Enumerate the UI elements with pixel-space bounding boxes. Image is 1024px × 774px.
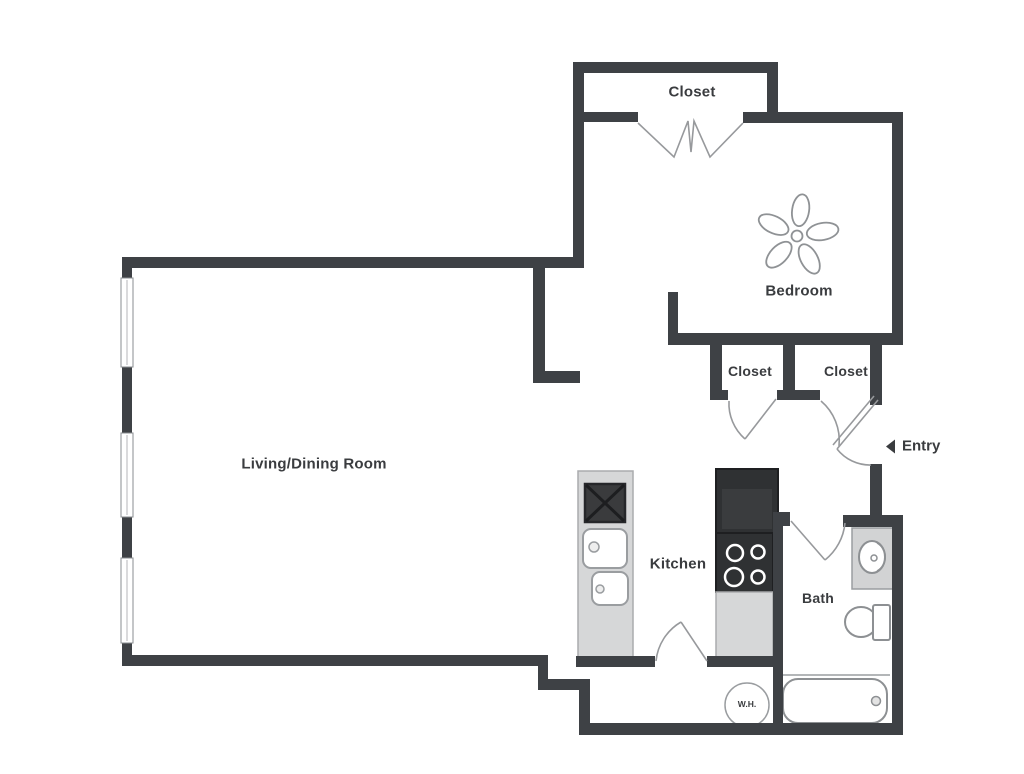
floor-plan: Closet Bedroom Living/Dining Room Closet…	[0, 0, 1024, 774]
closet-right-door-icon	[821, 401, 839, 446]
room-label-kitchen: Kitchen	[650, 556, 706, 573]
entry-arrow-icon	[886, 439, 895, 453]
entry-door-icon	[833, 396, 878, 465]
window-icon	[121, 558, 133, 643]
ceiling-fan-icon	[749, 188, 845, 280]
vanity-sink-icon	[852, 528, 893, 589]
toilet-icon	[845, 605, 890, 640]
room-label-bath: Bath	[802, 590, 834, 606]
room-label-closet-left: Closet	[728, 363, 772, 379]
kitchen-door-icon	[656, 622, 707, 661]
bifold-doors-icon	[638, 121, 743, 157]
bath-door-icon	[791, 521, 845, 560]
bathtub-icon	[781, 675, 890, 723]
walls-layer	[122, 62, 903, 735]
window-icon	[121, 278, 133, 367]
room-label-bedroom: Bedroom	[765, 283, 832, 300]
entry-label: Entry	[902, 438, 940, 455]
windows-layer	[121, 278, 133, 643]
floor-plan-drawing	[0, 0, 1024, 774]
closet-left-door-icon	[729, 399, 776, 439]
kitchen-counter-left	[578, 471, 633, 658]
water-heater-label: W.H.	[738, 699, 756, 709]
room-label-closet-top: Closet	[668, 84, 715, 101]
stove-icon	[716, 533, 773, 592]
window-icon	[121, 433, 133, 517]
entry-marker: Entry	[886, 438, 940, 455]
refrigerator-icon	[716, 469, 778, 533]
kitchen-counter-right	[716, 592, 773, 658]
room-label-living-dining: Living/Dining Room	[241, 456, 386, 473]
room-label-closet-right: Closet	[824, 363, 868, 379]
x-box-appliance-icon	[585, 484, 625, 522]
